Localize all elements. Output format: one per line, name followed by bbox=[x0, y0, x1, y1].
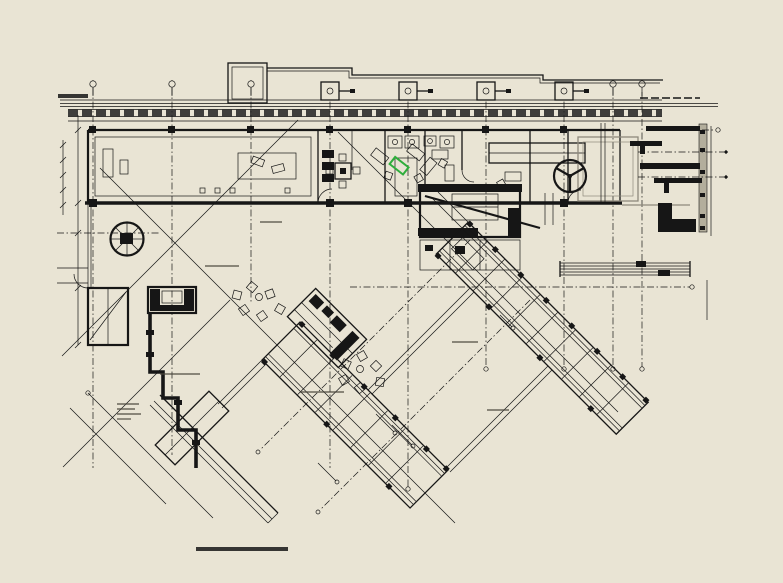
spiral-staircase-icon bbox=[111, 223, 144, 256]
floor-plan-sheet: TLORIS - pritličje bbox=[0, 0, 783, 583]
floor-plan-canvas bbox=[0, 0, 783, 583]
bottom-edge-bar bbox=[196, 547, 288, 551]
sheet-background bbox=[0, 0, 783, 583]
